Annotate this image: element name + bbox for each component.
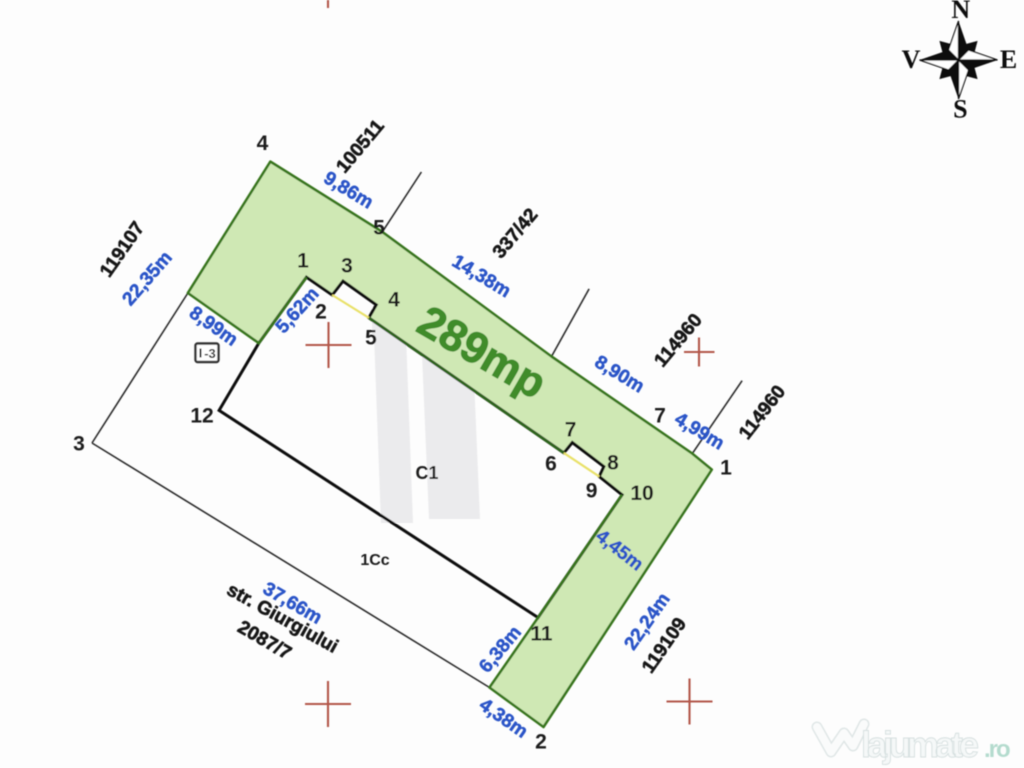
svg-text:12: 12 xyxy=(190,405,213,428)
svg-text:6: 6 xyxy=(545,453,557,476)
svg-text:E: E xyxy=(1000,45,1017,74)
svg-text:3: 3 xyxy=(73,433,85,456)
svg-text:4: 4 xyxy=(257,132,269,155)
svg-text:N: N xyxy=(951,0,970,24)
svg-text:2: 2 xyxy=(315,301,327,324)
svg-text:-3: -3 xyxy=(204,346,216,361)
svg-text:5: 5 xyxy=(373,217,385,240)
svg-text:5: 5 xyxy=(365,327,377,350)
svg-text:8: 8 xyxy=(607,452,619,475)
svg-text:C1: C1 xyxy=(415,463,438,483)
svg-text:1: 1 xyxy=(720,457,732,480)
svg-text:7: 7 xyxy=(565,419,577,442)
svg-text:9: 9 xyxy=(586,480,598,503)
svg-text:S: S xyxy=(953,95,967,124)
svg-text:lajumate: lajumate xyxy=(861,724,978,765)
svg-text:3: 3 xyxy=(341,255,353,278)
svg-text:11: 11 xyxy=(530,623,553,646)
svg-text:4: 4 xyxy=(388,289,400,312)
svg-text:1: 1 xyxy=(297,250,309,273)
svg-text:1Cc: 1Cc xyxy=(360,552,389,569)
svg-text:2: 2 xyxy=(535,731,547,754)
svg-text:V: V xyxy=(902,45,921,74)
svg-text:7: 7 xyxy=(654,405,666,428)
svg-text:10: 10 xyxy=(630,482,653,505)
svg-text:.ro: .ro xyxy=(984,736,1010,763)
